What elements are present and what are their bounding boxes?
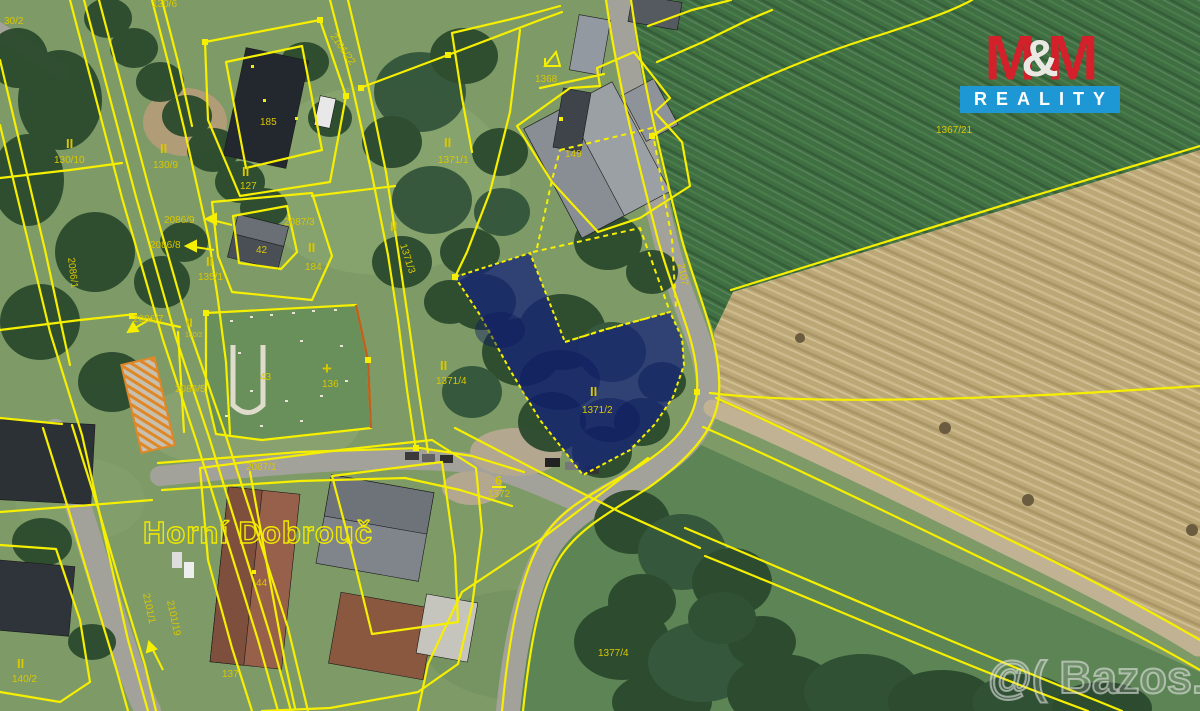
parcel-number-label: 1371/1 (438, 155, 469, 166)
place-label: Horní Dobrouč (143, 515, 373, 550)
parcel-number-label: 127 (240, 181, 257, 192)
parcel-number-label: 2086/7 (133, 314, 164, 325)
parcel-number-label: 1372 (488, 489, 511, 500)
parcel-number-label: 184 (305, 262, 322, 273)
parcel-number-label: 130/6 (152, 0, 177, 10)
parcel-number-label: 1371/4 (436, 376, 467, 387)
parcel-number-label: 43 (260, 372, 272, 383)
cross-icon: + (322, 359, 332, 378)
parcel-number-label: 140/2 (12, 674, 37, 685)
landuse-marker: II (17, 656, 24, 671)
parcel-number-label: 130/10 (54, 155, 85, 166)
landuse-marker: II (440, 358, 447, 373)
parcel-number-label: 44 (256, 578, 268, 589)
parcel-number-label: 1377/4 (598, 648, 629, 659)
parcel-number-label: 42 (256, 245, 268, 256)
mm-reality-logo: M & M REALITY (960, 28, 1120, 113)
parcel-number-label: 1367/21 (936, 125, 973, 136)
parcel-number-label: 135/1 (198, 272, 223, 283)
parcel-number-label: 136 (322, 379, 339, 390)
bazos-watermark: @( Bazos.cz (988, 652, 1200, 704)
parcel-number-label: 2086/5 (175, 384, 206, 395)
landuse-marker: II (206, 254, 213, 269)
logo-ampersand: & (1021, 33, 1059, 85)
parcel-number-label: 6 (495, 473, 502, 488)
parcel-number-label: 137 (222, 669, 239, 680)
landuse-marker: II (390, 219, 397, 234)
landuse-marker: II (186, 316, 193, 330)
parcel-number-label: 2086/9 (164, 215, 195, 226)
parcel-number-label: 1368 (535, 74, 558, 85)
parcel-number-label: 180/2 (185, 332, 203, 339)
house-149-dot (559, 117, 563, 121)
landuse-marker: II (308, 240, 315, 255)
landuse-marker: II (444, 135, 451, 150)
listing-photo: 30/2130/62101/22II130/10II130/9185II1272… (0, 0, 1200, 711)
parcel-number-label: 2087/1 (246, 462, 277, 473)
landuse-marker: II (242, 164, 249, 179)
logo-mm-row: M & M (960, 28, 1120, 90)
parcel-number-label: 149 (565, 149, 582, 160)
landuse-marker: II (590, 384, 597, 399)
parcel-number-label: 2087/3 (284, 217, 315, 228)
parcel-number-label: 185 (260, 117, 277, 128)
parcel-number-label: 1371/2 (582, 405, 613, 416)
parcel-number-label: 130/9 (153, 160, 178, 171)
parcel-number-label: 30/2 (4, 16, 24, 27)
cemetery (207, 305, 371, 440)
landuse-marker: II (66, 136, 73, 151)
landuse-marker: II (160, 141, 167, 156)
parcel-number-label: 2086/8 (150, 240, 181, 251)
